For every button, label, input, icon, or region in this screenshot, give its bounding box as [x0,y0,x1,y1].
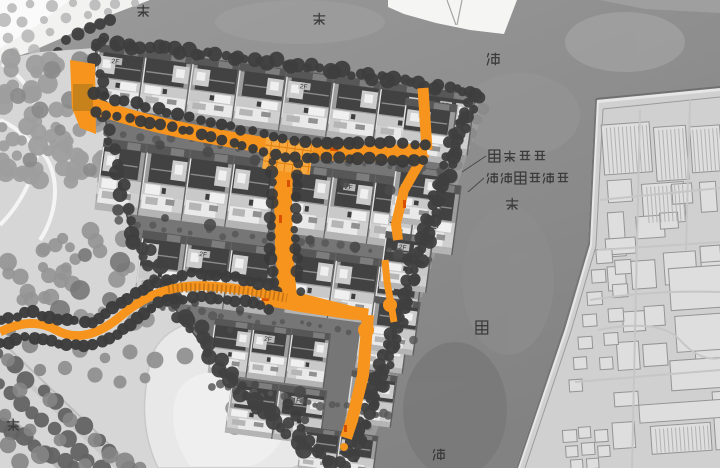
svg-text:2F: 2F [264,336,272,344]
svg-text:2F: 2F [299,83,307,91]
svg-text:2F: 2F [111,58,119,66]
svg-text:2F: 2F [199,251,207,259]
